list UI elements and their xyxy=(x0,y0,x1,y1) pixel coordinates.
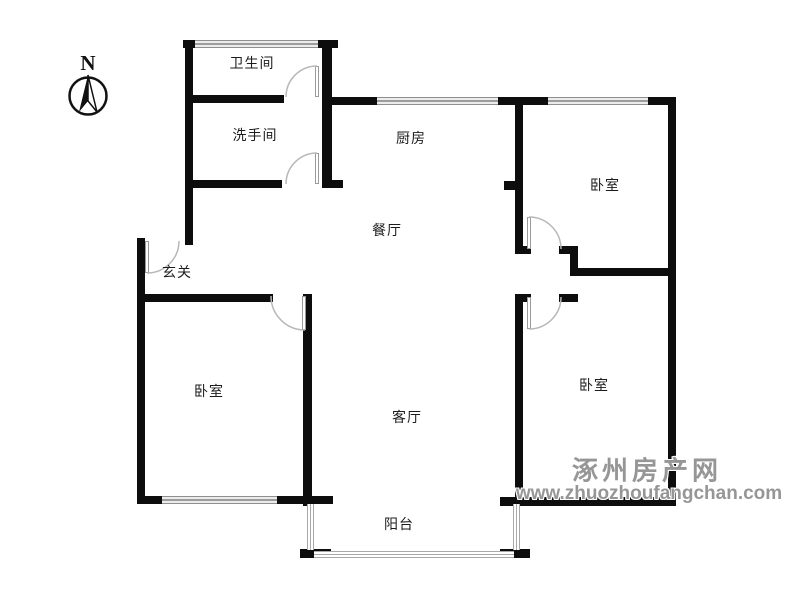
door-leaf xyxy=(145,241,149,273)
watermark-site-name: 涿州房产网 xyxy=(572,451,722,488)
room-label-bedroom-south: 卧室 xyxy=(579,375,609,395)
window xyxy=(548,97,648,105)
wall xyxy=(322,40,332,188)
compass-needle-light xyxy=(88,75,97,112)
door-leaf xyxy=(315,66,319,97)
room-label-washroom: 洗手间 xyxy=(233,125,278,145)
balcony-railing xyxy=(314,551,514,558)
door-leaf xyxy=(527,217,531,249)
wall xyxy=(515,294,523,506)
room-label-kitchen: 厨房 xyxy=(396,128,426,148)
wall xyxy=(185,40,193,245)
room-label-dining-room: 餐厅 xyxy=(372,220,402,240)
balcony-railing xyxy=(513,504,520,550)
door-swing-arc xyxy=(286,153,317,184)
floor-plan: N 卫生间 洗手间 厨房 卧室 餐厅 玄关 卧室 客厅 卧室 阳台 涿州房产网 … xyxy=(0,0,800,600)
north-label: N xyxy=(80,51,95,75)
window xyxy=(162,496,277,504)
compass: N xyxy=(70,51,107,115)
wall xyxy=(137,238,145,504)
window xyxy=(195,40,318,48)
door-leaf xyxy=(527,297,531,329)
door-swing-arc xyxy=(529,297,561,329)
room-label-living-room: 客厅 xyxy=(392,407,422,427)
balcony-railing xyxy=(307,504,314,550)
room-label-bedroom-west: 卧室 xyxy=(194,381,224,401)
watermark-url: www.zhuozhoufangchan.com xyxy=(516,483,782,505)
room-label-balcony: 阳台 xyxy=(384,514,414,534)
room-label-bedroom-north: 卧室 xyxy=(590,175,620,195)
room-label-entry-hall: 玄关 xyxy=(162,262,192,282)
wall xyxy=(185,180,282,188)
door-swing-arc xyxy=(529,217,561,249)
compass-needle-dark xyxy=(79,75,88,112)
wall xyxy=(185,95,284,103)
door-leaf xyxy=(302,296,306,330)
window xyxy=(377,97,498,105)
wall xyxy=(570,268,676,276)
wall xyxy=(668,97,676,506)
door-swing-arc xyxy=(286,66,317,97)
wall xyxy=(515,97,523,253)
wall xyxy=(137,294,273,302)
door-swing-arc xyxy=(271,296,305,330)
door-leaf xyxy=(315,153,319,184)
wall xyxy=(322,180,343,188)
plan-overlay: N xyxy=(0,0,800,600)
compass-circle xyxy=(70,78,107,115)
wall xyxy=(559,294,578,302)
room-label-bathroom: 卫生间 xyxy=(230,53,275,73)
